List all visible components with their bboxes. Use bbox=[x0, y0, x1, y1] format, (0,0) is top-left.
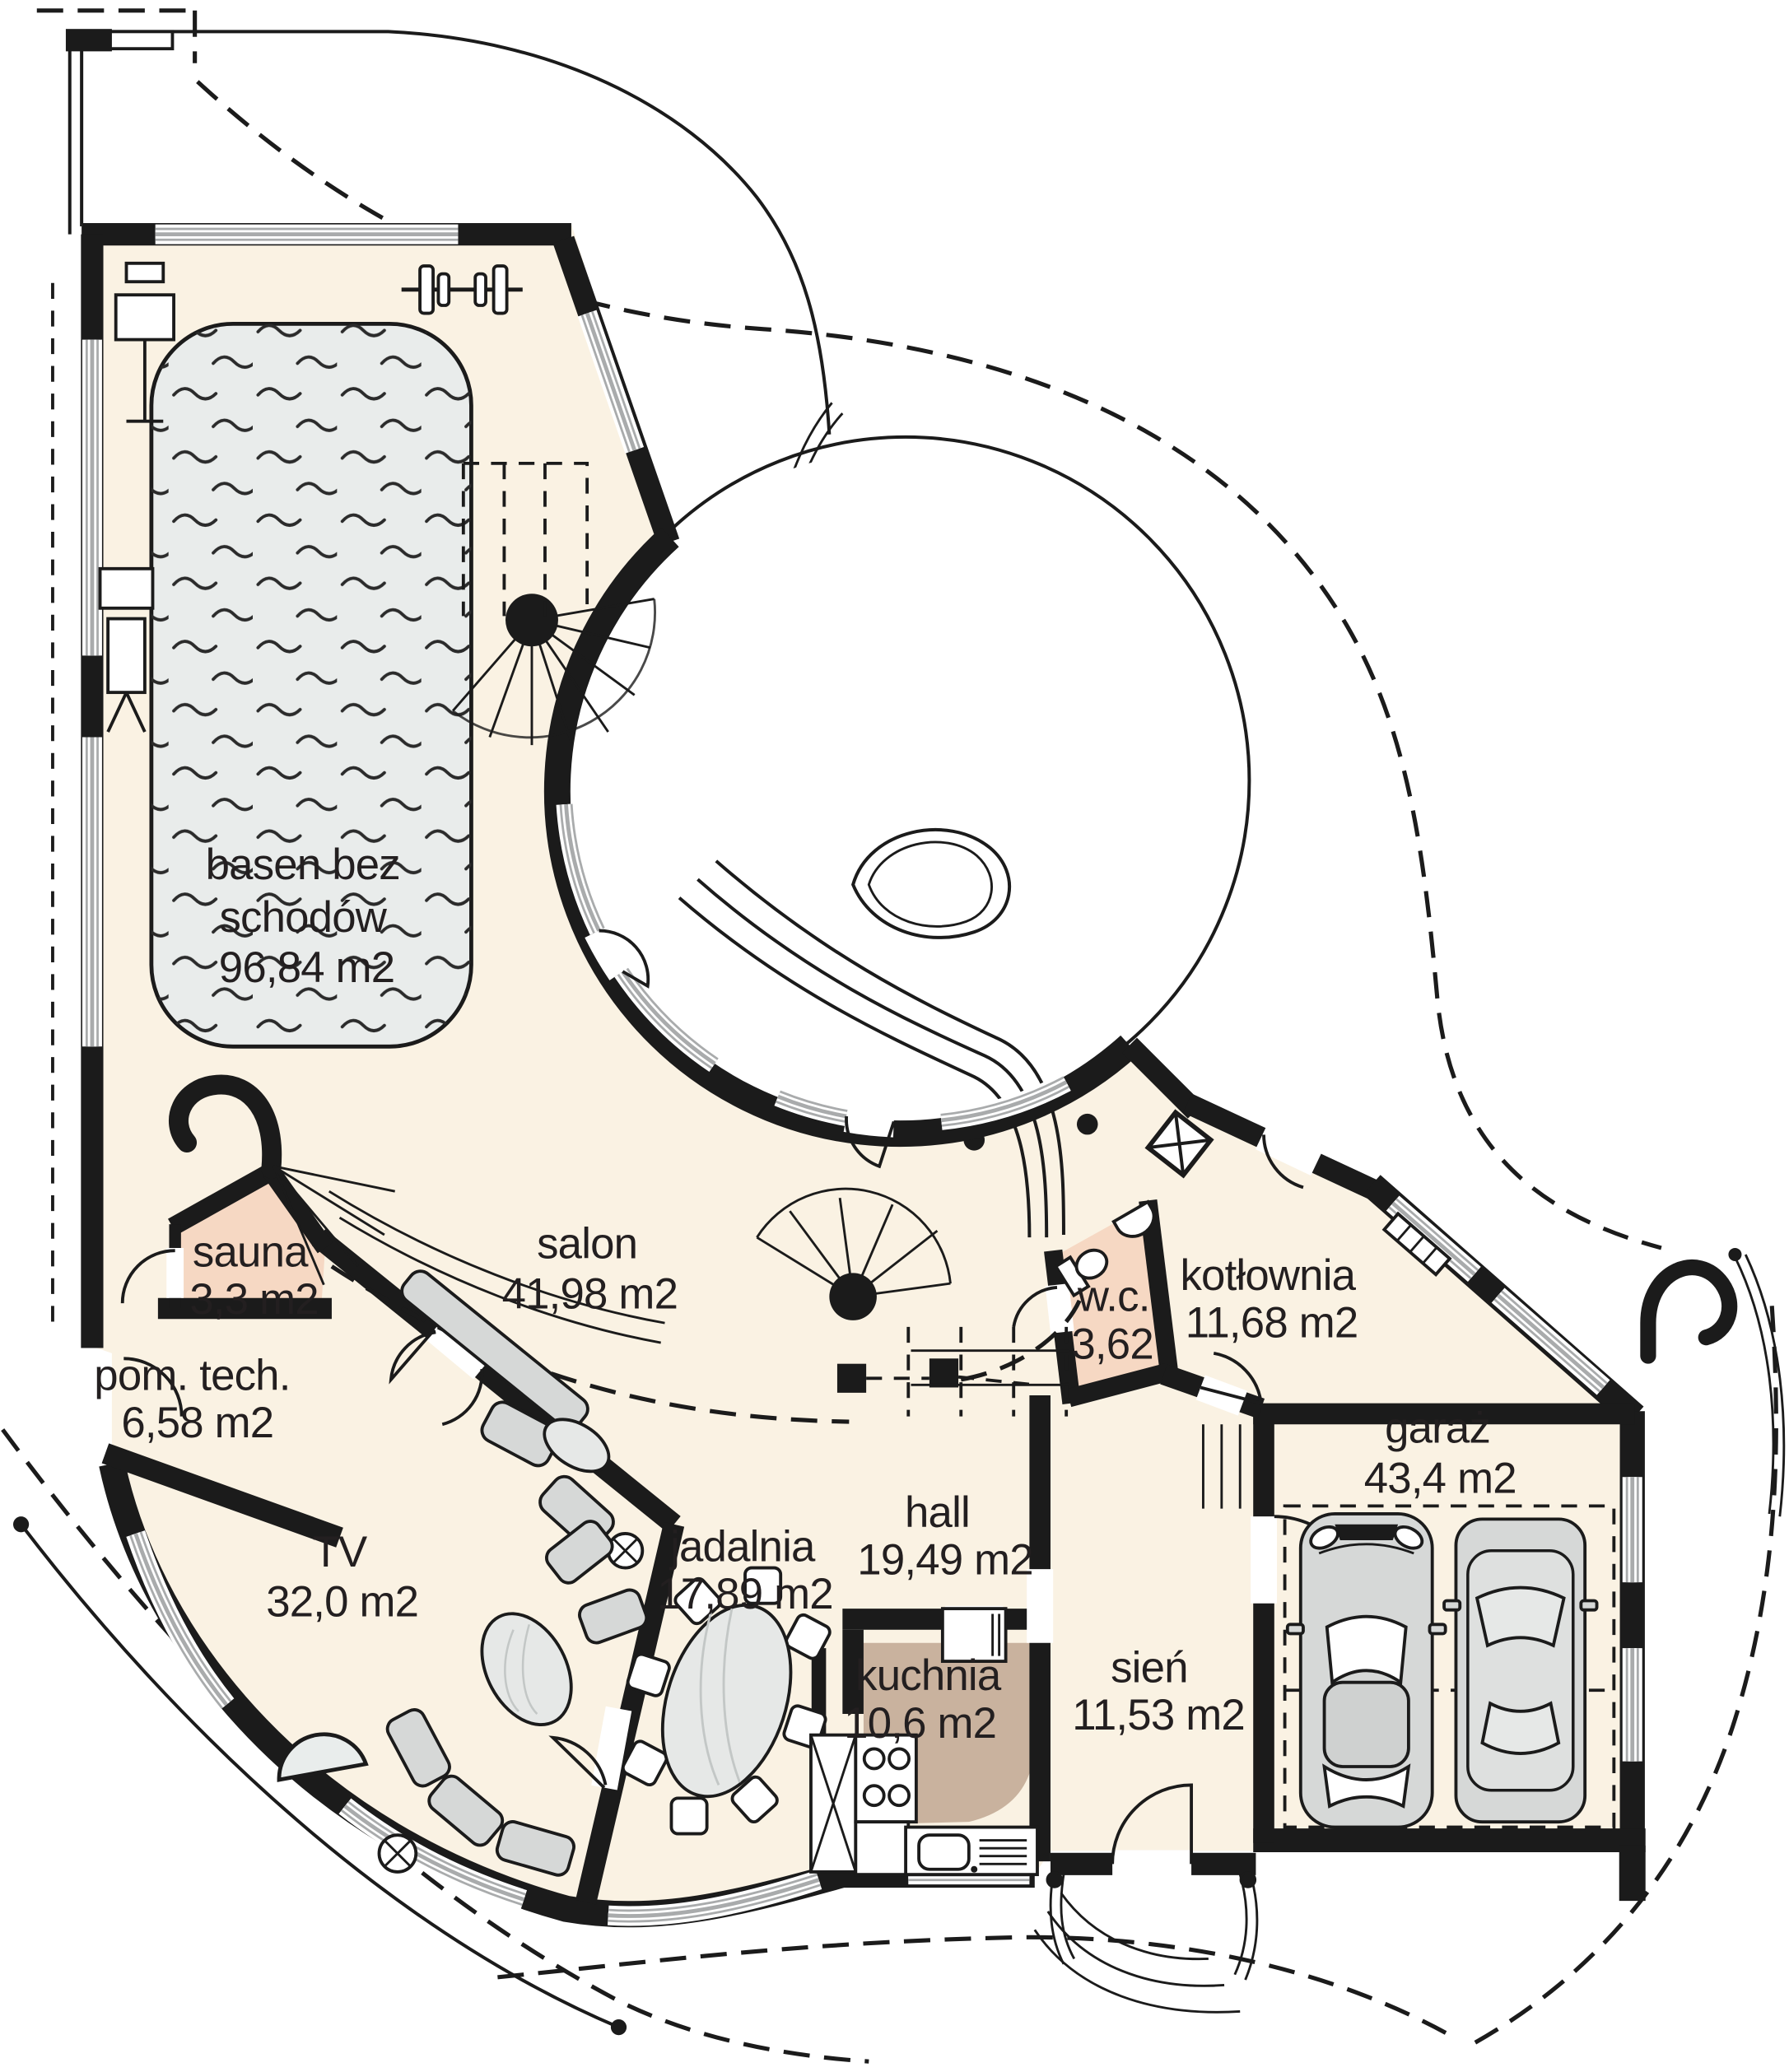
entrance-steps bbox=[1035, 1873, 1257, 2013]
label-jadalnia-area: 17,89 m2 bbox=[657, 1570, 833, 1618]
label-jadalnia: jadalnia bbox=[669, 1523, 816, 1571]
label-tv-area: 32,0 m2 bbox=[266, 1578, 418, 1627]
label-sien: sień bbox=[1111, 1644, 1188, 1693]
label-kotlownia: kotłownia bbox=[1180, 1251, 1356, 1300]
car-1 bbox=[1288, 1514, 1446, 1828]
terrace-column bbox=[1077, 1114, 1098, 1135]
label-garaz: garaż bbox=[1385, 1404, 1490, 1453]
label-basen-line1: basen bez bbox=[206, 840, 400, 889]
floor-plan-canvas: basen bez schodów 96,84 m2 sauna 3,3 m2 … bbox=[0, 0, 1789, 2072]
label-hall: hall bbox=[905, 1488, 970, 1537]
car-2 bbox=[1444, 1519, 1596, 1822]
label-garaz-area: 43,4 m2 bbox=[1364, 1454, 1516, 1502]
label-sauna-area: 3,3 m2 bbox=[189, 1275, 318, 1324]
label-salon: salon bbox=[537, 1220, 637, 1269]
label-salon-area: 41,98 m2 bbox=[502, 1270, 678, 1319]
label-pom-tech: pom. tech. bbox=[94, 1352, 290, 1400]
label-kuchnia-area: 10,6 m2 bbox=[844, 1699, 996, 1748]
label-kotlownia-area: 11,68 m2 bbox=[1186, 1299, 1358, 1348]
label-pom-tech-area: 6,58 m2 bbox=[121, 1399, 273, 1447]
label-basen-area: 96,84 m2 bbox=[219, 943, 395, 992]
downspout-hook bbox=[1648, 1268, 1730, 1356]
label-sien-area: 11,53 m2 bbox=[1072, 1691, 1245, 1739]
label-kuchnia: kuchnia bbox=[855, 1651, 1002, 1700]
label-wc-area: 3,62 bbox=[1071, 1320, 1153, 1368]
label-wc: w.c. bbox=[1077, 1273, 1150, 1321]
label-basen-line2: schodów bbox=[219, 893, 387, 942]
label-hall-area: 19,49 m2 bbox=[857, 1536, 1033, 1585]
label-sauna: sauna bbox=[193, 1227, 309, 1276]
wall-corner-block bbox=[66, 29, 112, 51]
label-tv: TV bbox=[313, 1528, 367, 1576]
